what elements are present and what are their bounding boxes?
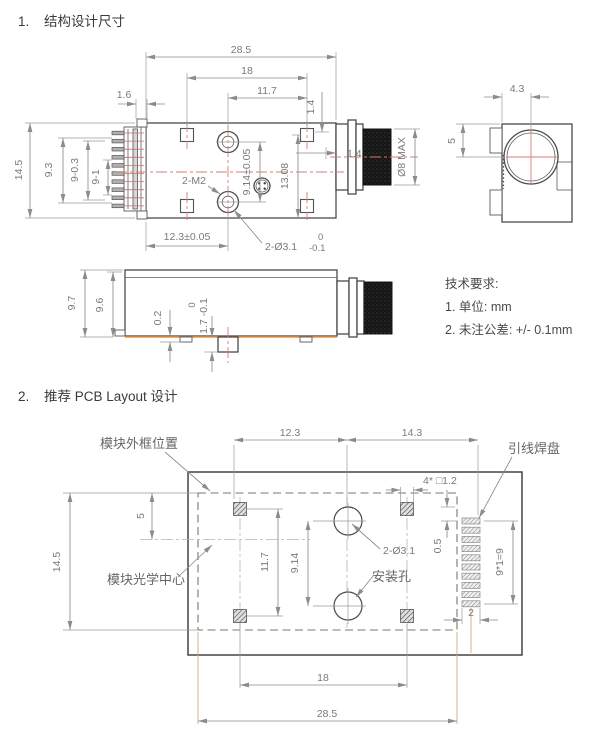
dim-pcb-right: 14.3 — [402, 427, 423, 439]
dim-pcb-height: 14.5 — [51, 552, 63, 573]
label-optical-center: 模块光学中心 — [107, 572, 185, 587]
end-view-tab-top — [490, 128, 502, 153]
dim-pad-top: 1.4 — [305, 100, 317, 115]
side-view: 9.7 9.6 0.2 0 1.7 -0.1 — [66, 270, 392, 372]
drawing-page: 1.结构设计尺寸 2.推荐 PCB Layout 设计 技术要求: 1. 单位:… — [0, 0, 601, 744]
dim-module-height: 14.5 — [13, 160, 25, 181]
end-view: 4.3 5 — [446, 83, 572, 222]
dim-optical-offset: 5 — [135, 513, 147, 519]
dim-pad-gap: 0.5 — [432, 539, 444, 554]
dim-pad-pitch: 9*1=9 — [494, 548, 506, 576]
label-2m2: 2-M2 — [182, 175, 206, 187]
label-pad-size: 4* □1.2 — [423, 475, 457, 487]
dim-lens-y: 5 — [446, 138, 458, 144]
end-view-tab-bottom — [490, 190, 502, 215]
dim-pcb-pad-vspan: 11.7 — [259, 552, 271, 572]
dim-height-total: 9.7 — [66, 296, 78, 311]
label-module-frame: 模块外框位置 — [100, 436, 178, 451]
dim-pin-row: 9-0.3 — [69, 158, 81, 182]
dim-hole-to-pad: 11.7 — [257, 85, 277, 97]
label-pcb-holes: 2-Ø3.1 — [383, 545, 415, 557]
side-left-foot — [115, 330, 125, 336]
connector — [124, 119, 147, 219]
dim-hole-offset: 12.3±0.05 — [164, 231, 211, 243]
dim-lens-x: 4.3 — [510, 83, 525, 95]
dim-pad-span: 18 — [241, 65, 253, 77]
dim-pcb-hole-pitch: 9.14 — [289, 553, 301, 574]
label-mount-holes: 2-Ø3.1 — [265, 241, 297, 253]
pcb-board-outline — [188, 472, 522, 655]
dim-pin-protrude: 1.6 — [117, 89, 132, 101]
end-view-body — [502, 124, 572, 222]
side-foot-left — [180, 337, 192, 342]
side-foot-right — [300, 337, 312, 342]
tab-tolerance-upper: 0 — [187, 302, 198, 307]
dim-pad-width: 2 — [468, 607, 474, 619]
dim-pad-side: 1.4 — [347, 148, 362, 160]
dim-pcb-left: 12.3 — [280, 427, 301, 439]
dim-pin-span: 9.3 — [43, 163, 55, 178]
dim-hole-pitch: 9.14±0.05 — [241, 149, 253, 196]
connector-tab-top — [137, 119, 147, 127]
hole-tolerance-upper: 0 — [318, 232, 323, 243]
dim-foot-height: 0.2 — [152, 311, 164, 326]
label-mounting-hole: 安装孔 — [372, 569, 411, 584]
dim-lens-diameter: Ø8 MAX — [396, 137, 408, 177]
side-knurled-barrel — [364, 282, 392, 334]
dim-pin-pitch: 9-1 — [90, 169, 102, 184]
dim-pcb-pad-span: 18 — [317, 672, 329, 684]
drawing-canvas: 28.5 18 11.7 1.6 14.5 9.3 9-0 — [0, 0, 601, 744]
top-view: 28.5 18 11.7 1.6 14.5 9.3 9-0 — [13, 44, 420, 254]
pcb-view: 12.3 14.3 模块外框位置 引线焊盘 4* □1.2 14.5 5 模块光… — [51, 427, 560, 724]
dim-overall-length: 28.5 — [231, 44, 252, 56]
dim-pcb-total: 28.5 — [317, 708, 338, 720]
label-lead-pads: 引线焊盘 — [508, 441, 560, 456]
hole-tolerance-lower: -0.1 — [309, 243, 325, 254]
connector-tab-bottom — [137, 211, 147, 219]
dim-tab-depth: 1.7 -0.1 — [198, 298, 210, 334]
dim-pad-vspan: 13.08 — [279, 163, 291, 189]
dim-height-body: 9.6 — [94, 298, 106, 313]
